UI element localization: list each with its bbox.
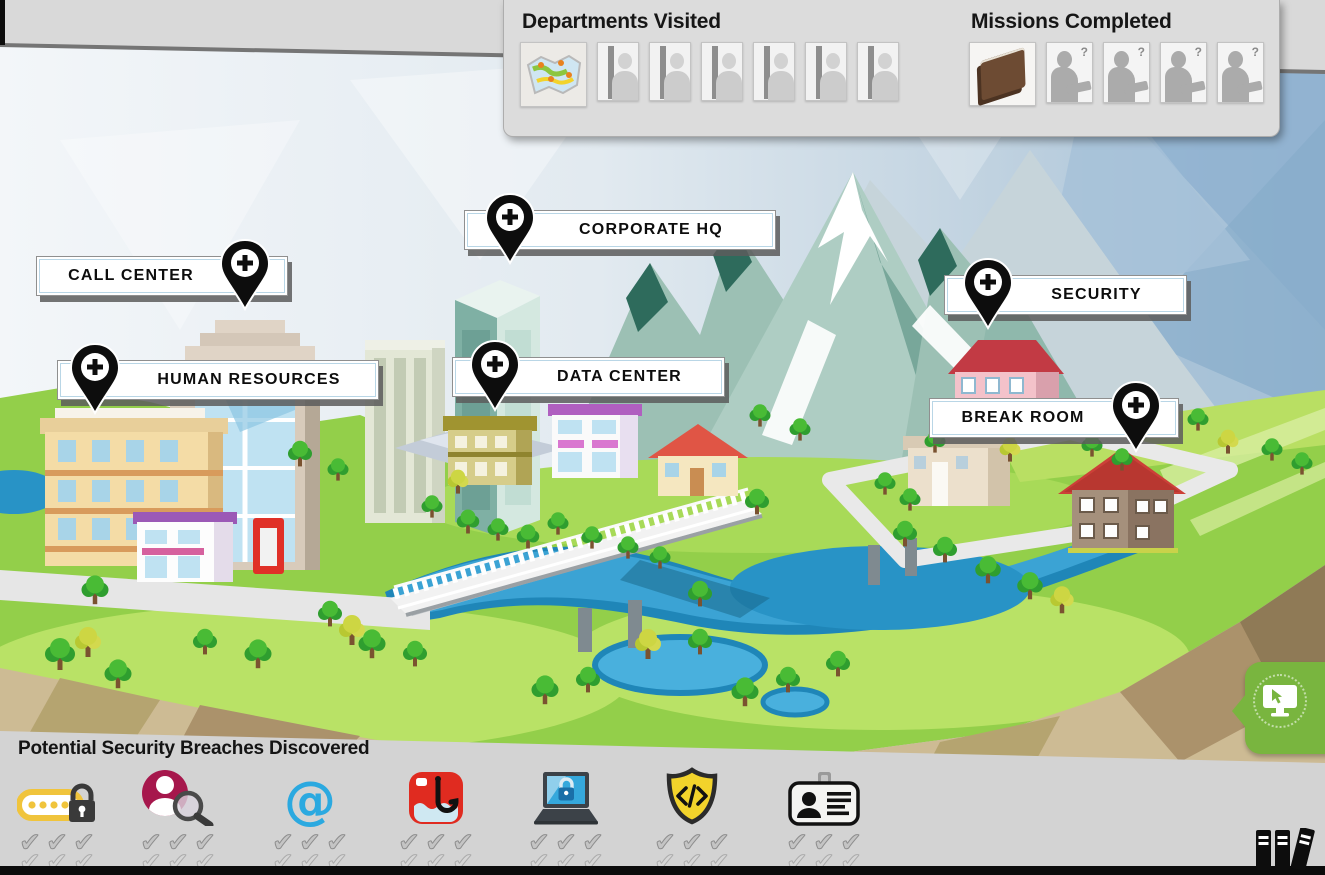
missions-tile-row: ? ? ? ? <box>969 42 1264 106</box>
department-tile-map <box>520 42 587 107</box>
breach-panel-title: Potential Security Breaches Discovered <box>18 738 369 760</box>
person-magnifier-icon <box>138 768 218 826</box>
screen-panel-tab[interactable] <box>1245 662 1325 754</box>
mission-tile-unknown-2: ? <box>1103 42 1150 103</box>
map-pin-plus-icon[interactable] <box>218 238 272 312</box>
bottom-edge-bar <box>0 866 1325 875</box>
missions-completed-section: Missions Completed ? ? ? ? <box>969 8 1264 136</box>
location-data-center[interactable]: DATA CENTER <box>452 357 725 397</box>
location-label: DATA CENTER <box>557 368 682 386</box>
department-tile-person-6 <box>857 42 899 101</box>
library-books-button[interactable] <box>1254 828 1318 875</box>
location-human-resources[interactable]: HUMAN RESOURCES <box>57 360 379 400</box>
location-label: SECURITY <box>1051 286 1142 304</box>
mission-tile-unknown-1: ? <box>1046 42 1093 103</box>
pink-shop-building <box>548 404 642 478</box>
at-symbol-icon: @ <box>284 768 336 826</box>
breach-phishing: ✔✔✔✔✔✔ <box>390 768 482 872</box>
location-label: HUMAN RESOURCES <box>157 371 340 389</box>
map-pin-plus-icon[interactable] <box>961 257 1015 331</box>
location-label: CORPORATE HQ <box>579 221 723 239</box>
mission-tile-unknown-3: ? <box>1160 42 1207 103</box>
breach-malicious-code: ✔✔✔✔✔✔ <box>646 768 738 872</box>
department-tile-person-5 <box>805 42 847 101</box>
folded-map-icon <box>525 51 583 99</box>
location-corporate-hq[interactable]: CORPORATE HQ <box>464 210 776 250</box>
mission-tile-unknown-4: ? <box>1217 42 1264 103</box>
location-label: CALL CENTER <box>68 267 194 285</box>
map-pin-plus-icon[interactable] <box>68 342 122 416</box>
departments-visited-section: Departments Visited <box>520 8 899 136</box>
breach-id-badge: ✔✔✔✔✔✔ <box>778 768 870 872</box>
department-tile-person-2 <box>649 42 691 101</box>
breach-identity-search: ✔✔✔✔✔✔ <box>132 768 224 872</box>
question-badge: ? <box>1138 45 1145 59</box>
map-pin-plus-icon[interactable] <box>468 339 522 413</box>
department-tile-person-3 <box>701 42 743 101</box>
security-training-map-screen: { "hud": { "departments": { "title": "De… <box>0 0 1325 875</box>
location-security[interactable]: SECURITY <box>944 275 1187 315</box>
laptop-lock-icon <box>530 768 602 826</box>
map-pin-plus-icon[interactable] <box>1109 380 1163 454</box>
monitor-cursor-icon <box>1262 685 1298 717</box>
breach-email: @ ✔✔✔✔✔✔ <box>264 768 356 872</box>
dotted-ring <box>1253 674 1307 728</box>
hud-panel: Departments Visited Missions Completed ? <box>503 0 1280 137</box>
mission-tile-book <box>969 42 1036 106</box>
map-pin-plus-icon[interactable] <box>483 192 537 266</box>
department-tile-person-4 <box>753 42 795 101</box>
books-icon <box>1254 828 1318 870</box>
departments-visited-title: Departments Visited <box>522 10 899 34</box>
corner-shop-building <box>133 512 237 582</box>
code-shield-icon <box>663 768 721 826</box>
tab-arrow-icon <box>1232 694 1246 728</box>
id-card-icon <box>787 768 861 826</box>
location-break-room[interactable]: BREAK ROOM <box>929 398 1179 438</box>
department-tile-person-1 <box>597 42 639 101</box>
phone-booth <box>253 518 284 574</box>
question-badge: ? <box>1252 45 1259 59</box>
breach-computer-security: ✔✔✔✔✔✔ <box>520 768 612 872</box>
beige-house <box>903 436 1015 506</box>
location-label: BREAK ROOM <box>961 409 1084 427</box>
location-call-center[interactable]: CALL CENTER <box>36 256 288 296</box>
departments-tile-row <box>520 42 899 107</box>
question-badge: ? <box>1195 45 1202 59</box>
book-icon <box>980 47 1025 101</box>
phishing-hook-icon <box>407 768 465 826</box>
password-lock-icon <box>17 768 97 826</box>
missions-completed-title: Missions Completed <box>971 10 1264 34</box>
question-badge: ? <box>1081 45 1088 59</box>
breach-password: ✔✔✔✔✔✔ <box>11 768 103 872</box>
